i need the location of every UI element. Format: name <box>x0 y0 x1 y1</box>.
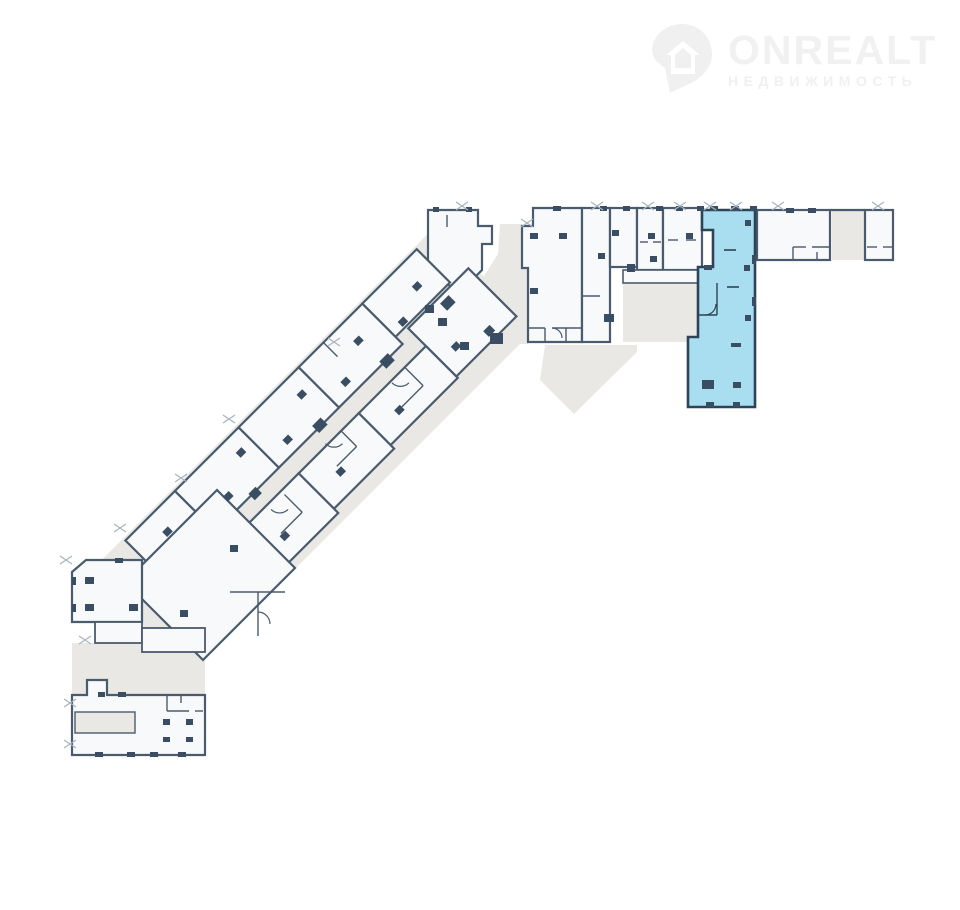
opening-mark <box>772 202 784 210</box>
column <box>650 256 657 262</box>
room <box>522 208 582 342</box>
opening-mark <box>79 636 91 644</box>
column <box>425 305 434 313</box>
column <box>72 604 76 612</box>
room <box>142 628 205 652</box>
column <box>744 265 750 271</box>
column <box>733 402 740 407</box>
column <box>704 265 712 270</box>
column <box>745 220 751 226</box>
column <box>697 206 704 211</box>
opening-mark <box>60 556 72 564</box>
column <box>733 382 741 388</box>
column <box>115 558 123 563</box>
door-arc <box>258 612 270 624</box>
column <box>808 208 816 213</box>
column <box>129 604 138 611</box>
opening-mark <box>114 524 126 532</box>
column <box>150 752 158 757</box>
column <box>127 752 135 757</box>
column <box>648 233 655 239</box>
column <box>750 206 757 211</box>
column <box>186 719 193 725</box>
room <box>663 208 702 270</box>
gray-area-below-block <box>540 345 637 414</box>
opening-mark <box>456 202 468 210</box>
gray-area-wing-left <box>623 283 700 342</box>
column <box>752 255 756 264</box>
column <box>530 288 538 294</box>
column <box>627 264 635 272</box>
column <box>95 752 103 757</box>
column <box>745 315 751 321</box>
column <box>85 577 94 584</box>
column <box>230 545 238 552</box>
column <box>559 233 567 239</box>
column <box>731 343 741 347</box>
floor-plan-page <box>0 0 960 910</box>
column <box>98 692 105 697</box>
column <box>85 604 94 611</box>
column <box>706 402 714 407</box>
column <box>163 719 170 725</box>
column <box>623 206 630 211</box>
column <box>604 314 614 322</box>
column <box>530 233 538 239</box>
column <box>702 380 714 389</box>
opening-mark <box>872 202 884 210</box>
column <box>752 297 756 306</box>
opening-mark <box>223 415 235 423</box>
shaft <box>75 712 135 733</box>
column <box>656 206 663 211</box>
column <box>598 253 605 259</box>
column <box>612 230 619 236</box>
room <box>865 210 893 260</box>
column <box>178 752 186 757</box>
column <box>186 737 193 742</box>
column <box>163 737 170 742</box>
column <box>553 206 561 211</box>
floor-plan <box>0 0 960 910</box>
room <box>610 208 637 267</box>
column <box>460 342 469 350</box>
column <box>686 233 693 239</box>
column <box>490 333 503 344</box>
room <box>95 622 142 643</box>
column <box>438 318 447 326</box>
column <box>433 207 439 212</box>
column <box>118 692 126 697</box>
column <box>180 610 188 617</box>
column <box>72 577 76 585</box>
column <box>786 208 794 213</box>
gray-area-wing-right <box>832 210 865 260</box>
room <box>72 560 142 622</box>
